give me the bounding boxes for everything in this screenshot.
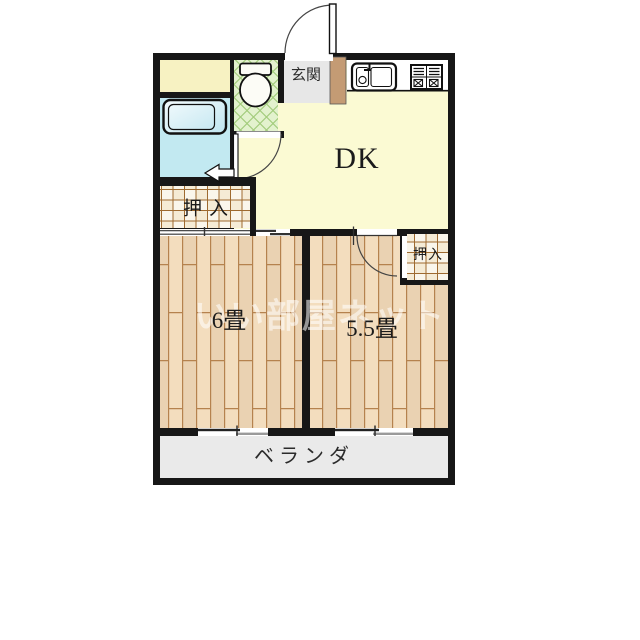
room6-label: 6畳 — [212, 301, 247, 335]
hall-sliding-door — [256, 229, 290, 236]
genkan-step — [330, 57, 346, 104]
toilet-door-opening — [237, 132, 281, 139]
entry-door — [285, 4, 336, 61]
utility-room-floor — [160, 60, 230, 92]
gas-stove-icon — [411, 65, 442, 89]
kitchen-sink-icon — [352, 63, 396, 91]
room55-label: 5.5畳 — [346, 309, 398, 343]
toilet-icon — [240, 64, 271, 107]
genkan-label: 玄関 — [291, 64, 321, 85]
dk-label: DK — [334, 142, 379, 176]
bathtub-icon — [164, 100, 227, 134]
oshiire-right-label: 押入 — [413, 244, 443, 264]
closet-left-wall-right — [250, 177, 256, 236]
oshiire-left-label: 押入 — [183, 194, 235, 221]
floor-plan: いい部屋ネット DK 玄関 6畳 5.5畳 押入 押入 ベランダ — [0, 0, 640, 640]
veranda-label: ベランダ — [254, 440, 354, 469]
